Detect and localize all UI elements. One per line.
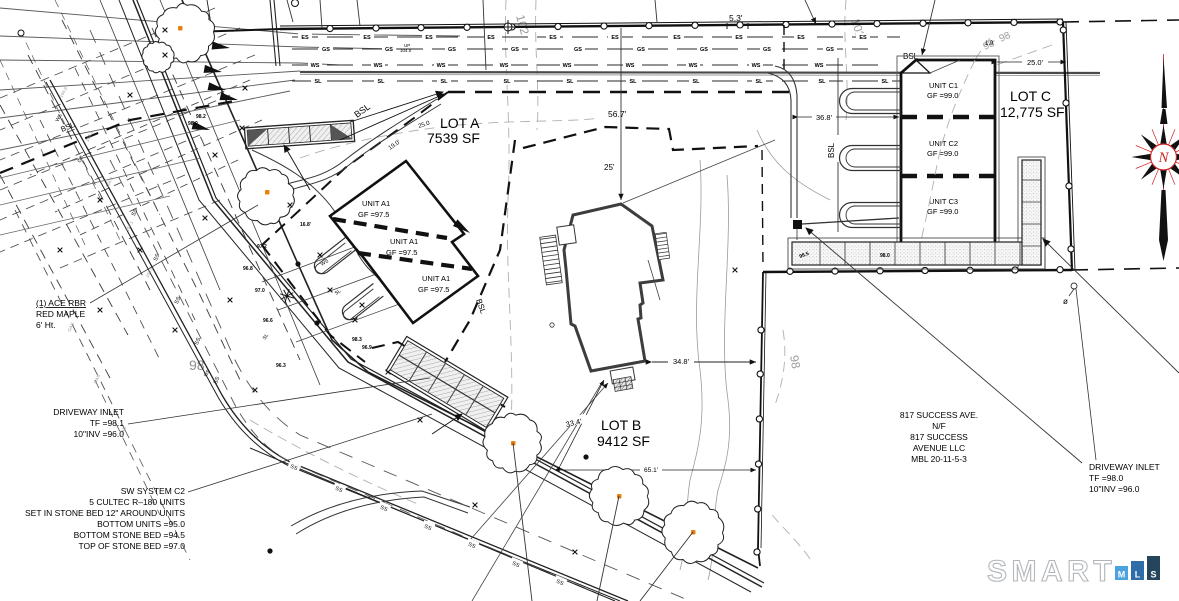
svg-text:98.2: 98.2 — [196, 114, 206, 120]
svg-text:34.8': 34.8' — [673, 357, 690, 366]
svg-text:ES: ES — [797, 35, 805, 41]
svg-text:ES: ES — [487, 35, 495, 41]
svg-text:10"INV =96.0: 10"INV =96.0 — [1089, 484, 1140, 494]
svg-text:98: 98 — [787, 354, 803, 370]
svg-text:SL: SL — [629, 79, 637, 85]
svg-text:ES: ES — [549, 35, 557, 41]
svg-text:GS: GS — [385, 47, 393, 53]
svg-text:1.9': 1.9' — [985, 41, 995, 47]
svg-text:7539 SF: 7539 SF — [427, 130, 480, 146]
svg-text:BSL: BSL — [827, 142, 836, 158]
svg-text:SMART: SMART — [987, 555, 1116, 588]
svg-text:N: N — [1157, 150, 1169, 166]
svg-text:WS: WS — [752, 63, 761, 69]
svg-text:25.0': 25.0' — [1027, 58, 1044, 67]
svg-text:98.0: 98.0 — [188, 121, 198, 127]
svg-text:ø: ø — [1063, 297, 1068, 306]
svg-text:SL: SL — [377, 79, 385, 85]
svg-text:SW SYSTEM C2: SW SYSTEM C2 — [121, 486, 186, 496]
svg-text:96.8: 96.8 — [243, 266, 253, 272]
svg-text:DRIVEWAY INLET: DRIVEWAY INLET — [53, 407, 124, 417]
svg-text:25': 25' — [604, 163, 615, 172]
svg-text:ES: ES — [735, 35, 743, 41]
svg-text:65.1': 65.1' — [644, 467, 658, 474]
svg-text:UNIT A1: UNIT A1 — [390, 237, 418, 246]
svg-text:6' Ht.: 6' Ht. — [36, 320, 56, 330]
svg-text:SL: SL — [440, 79, 448, 85]
svg-text:9412 SF: 9412 SF — [597, 433, 650, 449]
svg-text:GS: GS — [511, 47, 519, 53]
svg-text:SL: SL — [692, 79, 700, 85]
svg-text:98.3: 98.3 — [352, 337, 362, 343]
svg-text:GS: GS — [700, 47, 708, 53]
svg-text:TOP OF STONE BED =97.0: TOP OF STONE BED =97.0 — [78, 541, 185, 551]
svg-text:DRIVEWAY INLET: DRIVEWAY INLET — [1089, 462, 1160, 472]
svg-text:AVENUE LLC: AVENUE LLC — [913, 443, 965, 453]
svg-text:WS: WS — [437, 63, 446, 69]
svg-text:GF =99.0: GF =99.0 — [927, 207, 958, 216]
svg-text:N/F: N/F — [932, 421, 946, 431]
svg-text:SL: SL — [881, 79, 889, 85]
svg-text:ES: ES — [425, 35, 433, 41]
svg-text:BOTTOM STONE BED =94.5: BOTTOM STONE BED =94.5 — [74, 530, 186, 540]
svg-text:GS: GS — [763, 47, 771, 53]
svg-text:WS: WS — [563, 63, 572, 69]
svg-text:SL: SL — [566, 79, 574, 85]
svg-text:ES: ES — [363, 35, 371, 41]
svg-text:GF =97.5: GF =97.5 — [358, 210, 389, 219]
svg-text:96.9: 96.9 — [362, 345, 372, 351]
svg-text:GS: GS — [574, 47, 582, 53]
svg-text:GF =99.0: GF =99.0 — [927, 91, 958, 100]
svg-text:TF =98.1: TF =98.1 — [90, 418, 125, 428]
svg-text:MBL 20-11-5-3: MBL 20-11-5-3 — [911, 454, 967, 464]
svg-text:GS: GS — [322, 47, 330, 53]
svg-text:RED MAPLE: RED MAPLE — [36, 309, 85, 319]
svg-text:L: L — [1135, 570, 1141, 580]
svg-text:GS: GS — [448, 47, 456, 53]
svg-text:(1) ACE RBR: (1) ACE RBR — [36, 298, 86, 308]
svg-text:UNIT C3: UNIT C3 — [929, 197, 958, 206]
svg-text:SL: SL — [818, 79, 826, 85]
svg-text:GS: GS — [826, 47, 834, 53]
svg-text:SET IN STONE BED 12" AROU: SET IN STONE BED 12" AROUND UNITS — [25, 508, 185, 518]
svg-text:GS: GS — [637, 47, 645, 53]
svg-text:56.7': 56.7' — [608, 109, 627, 119]
svg-text:12,775 SF: 12,775 SF — [1000, 104, 1065, 120]
svg-text:S: S — [1150, 570, 1156, 580]
svg-text:M: M — [1118, 570, 1126, 580]
svg-text:97.0: 97.0 — [255, 288, 265, 294]
svg-text:36.8': 36.8' — [816, 113, 833, 122]
svg-text:SL: SL — [503, 79, 511, 85]
svg-text:ES: ES — [301, 35, 309, 41]
svg-text:GF =97.5: GF =97.5 — [418, 285, 449, 294]
svg-text:WS: WS — [626, 63, 635, 69]
svg-text:ES: ES — [673, 35, 681, 41]
svg-text:WS: WS — [689, 63, 698, 69]
svg-text:UNIT C1: UNIT C1 — [929, 81, 958, 90]
svg-text:817 SUCCESS AVE.: 817 SUCCESS AVE. — [900, 410, 978, 420]
svg-text:WS: WS — [815, 63, 824, 69]
svg-text:104.0: 104.0 — [400, 48, 412, 53]
svg-text:SL: SL — [314, 79, 322, 85]
svg-text:ES: ES — [859, 35, 867, 41]
svg-text:5 CULTEC R–180 UNITS: 5 CULTEC R–180 UNITS — [89, 497, 185, 507]
svg-text:WS: WS — [311, 63, 320, 69]
svg-text:SL: SL — [755, 79, 763, 85]
svg-text:WS: WS — [374, 63, 383, 69]
svg-text:UNIT A1: UNIT A1 — [362, 199, 390, 208]
svg-text:ES: ES — [611, 35, 619, 41]
svg-text:UNIT A1: UNIT A1 — [422, 274, 450, 283]
svg-text:LOT A: LOT A — [440, 115, 480, 131]
svg-text:WS: WS — [500, 63, 509, 69]
svg-text:16.8': 16.8' — [300, 222, 311, 228]
svg-text:UNIT C2: UNIT C2 — [929, 139, 958, 148]
svg-text:TF =98.0: TF =98.0 — [1089, 473, 1124, 483]
svg-text:97.2: 97.2 — [257, 244, 267, 250]
svg-text:96.3: 96.3 — [276, 363, 286, 369]
svg-text:GF =99.0: GF =99.0 — [927, 149, 958, 158]
svg-text:LOT B: LOT B — [601, 417, 641, 433]
svg-text:GF =97.5: GF =97.5 — [386, 248, 417, 257]
svg-text:817 SUCCESS: 817 SUCCESS — [910, 432, 968, 442]
svg-text:LOT C: LOT C — [1010, 88, 1051, 104]
svg-text:98.0: 98.0 — [880, 253, 890, 259]
svg-text:5.3': 5.3' — [729, 13, 743, 23]
svg-text:10"INV =96.0: 10"INV =96.0 — [73, 429, 124, 439]
svg-text:96.6: 96.6 — [263, 318, 273, 324]
svg-text:BOTTOM UNITS =95.0: BOTTOM UNITS =95.0 — [97, 519, 185, 529]
